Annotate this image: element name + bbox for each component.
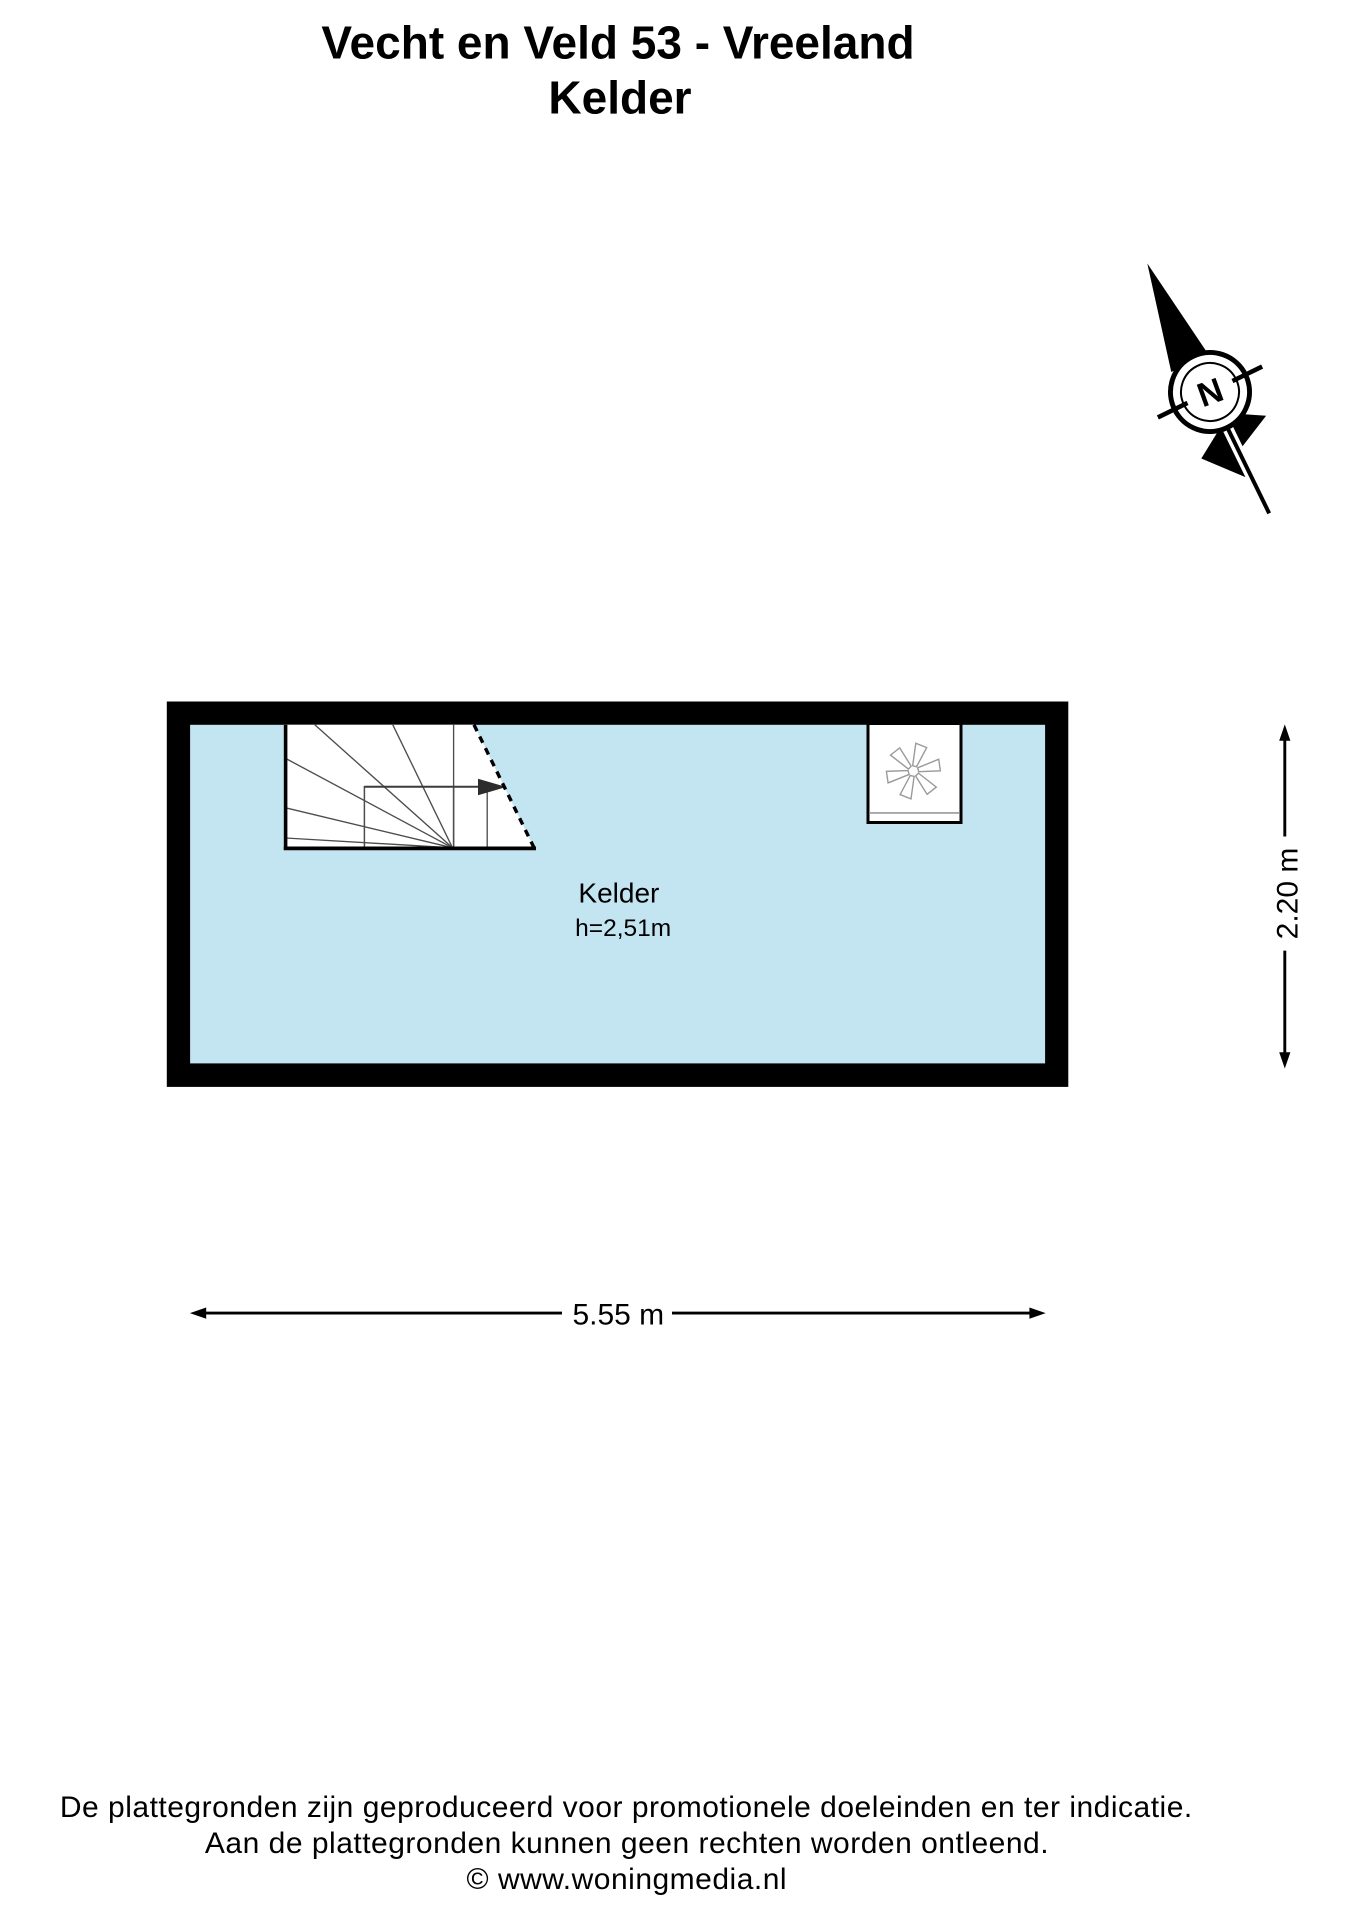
- svg-text:Kelder: Kelder: [548, 72, 691, 124]
- svg-text:Aan de plattegronden kunnen ge: Aan de plattegronden kunnen geen rechten…: [205, 1827, 1049, 1860]
- svg-text:© www.woningmedia.nl: © www.woningmedia.nl: [467, 1863, 788, 1896]
- svg-text:5.55 m: 5.55 m: [572, 1299, 664, 1332]
- svg-text:Kelder: Kelder: [578, 877, 659, 908]
- svg-text:2.20 m: 2.20 m: [1271, 848, 1304, 940]
- svg-text:Vecht en Veld 53 - Vreeland: Vecht en Veld 53 - Vreeland: [321, 17, 914, 69]
- svg-text:De plattegronden zijn geproduc: De plattegronden zijn geproduceerd voor …: [60, 1791, 1193, 1824]
- svg-text:h=2,51m: h=2,51m: [575, 915, 671, 942]
